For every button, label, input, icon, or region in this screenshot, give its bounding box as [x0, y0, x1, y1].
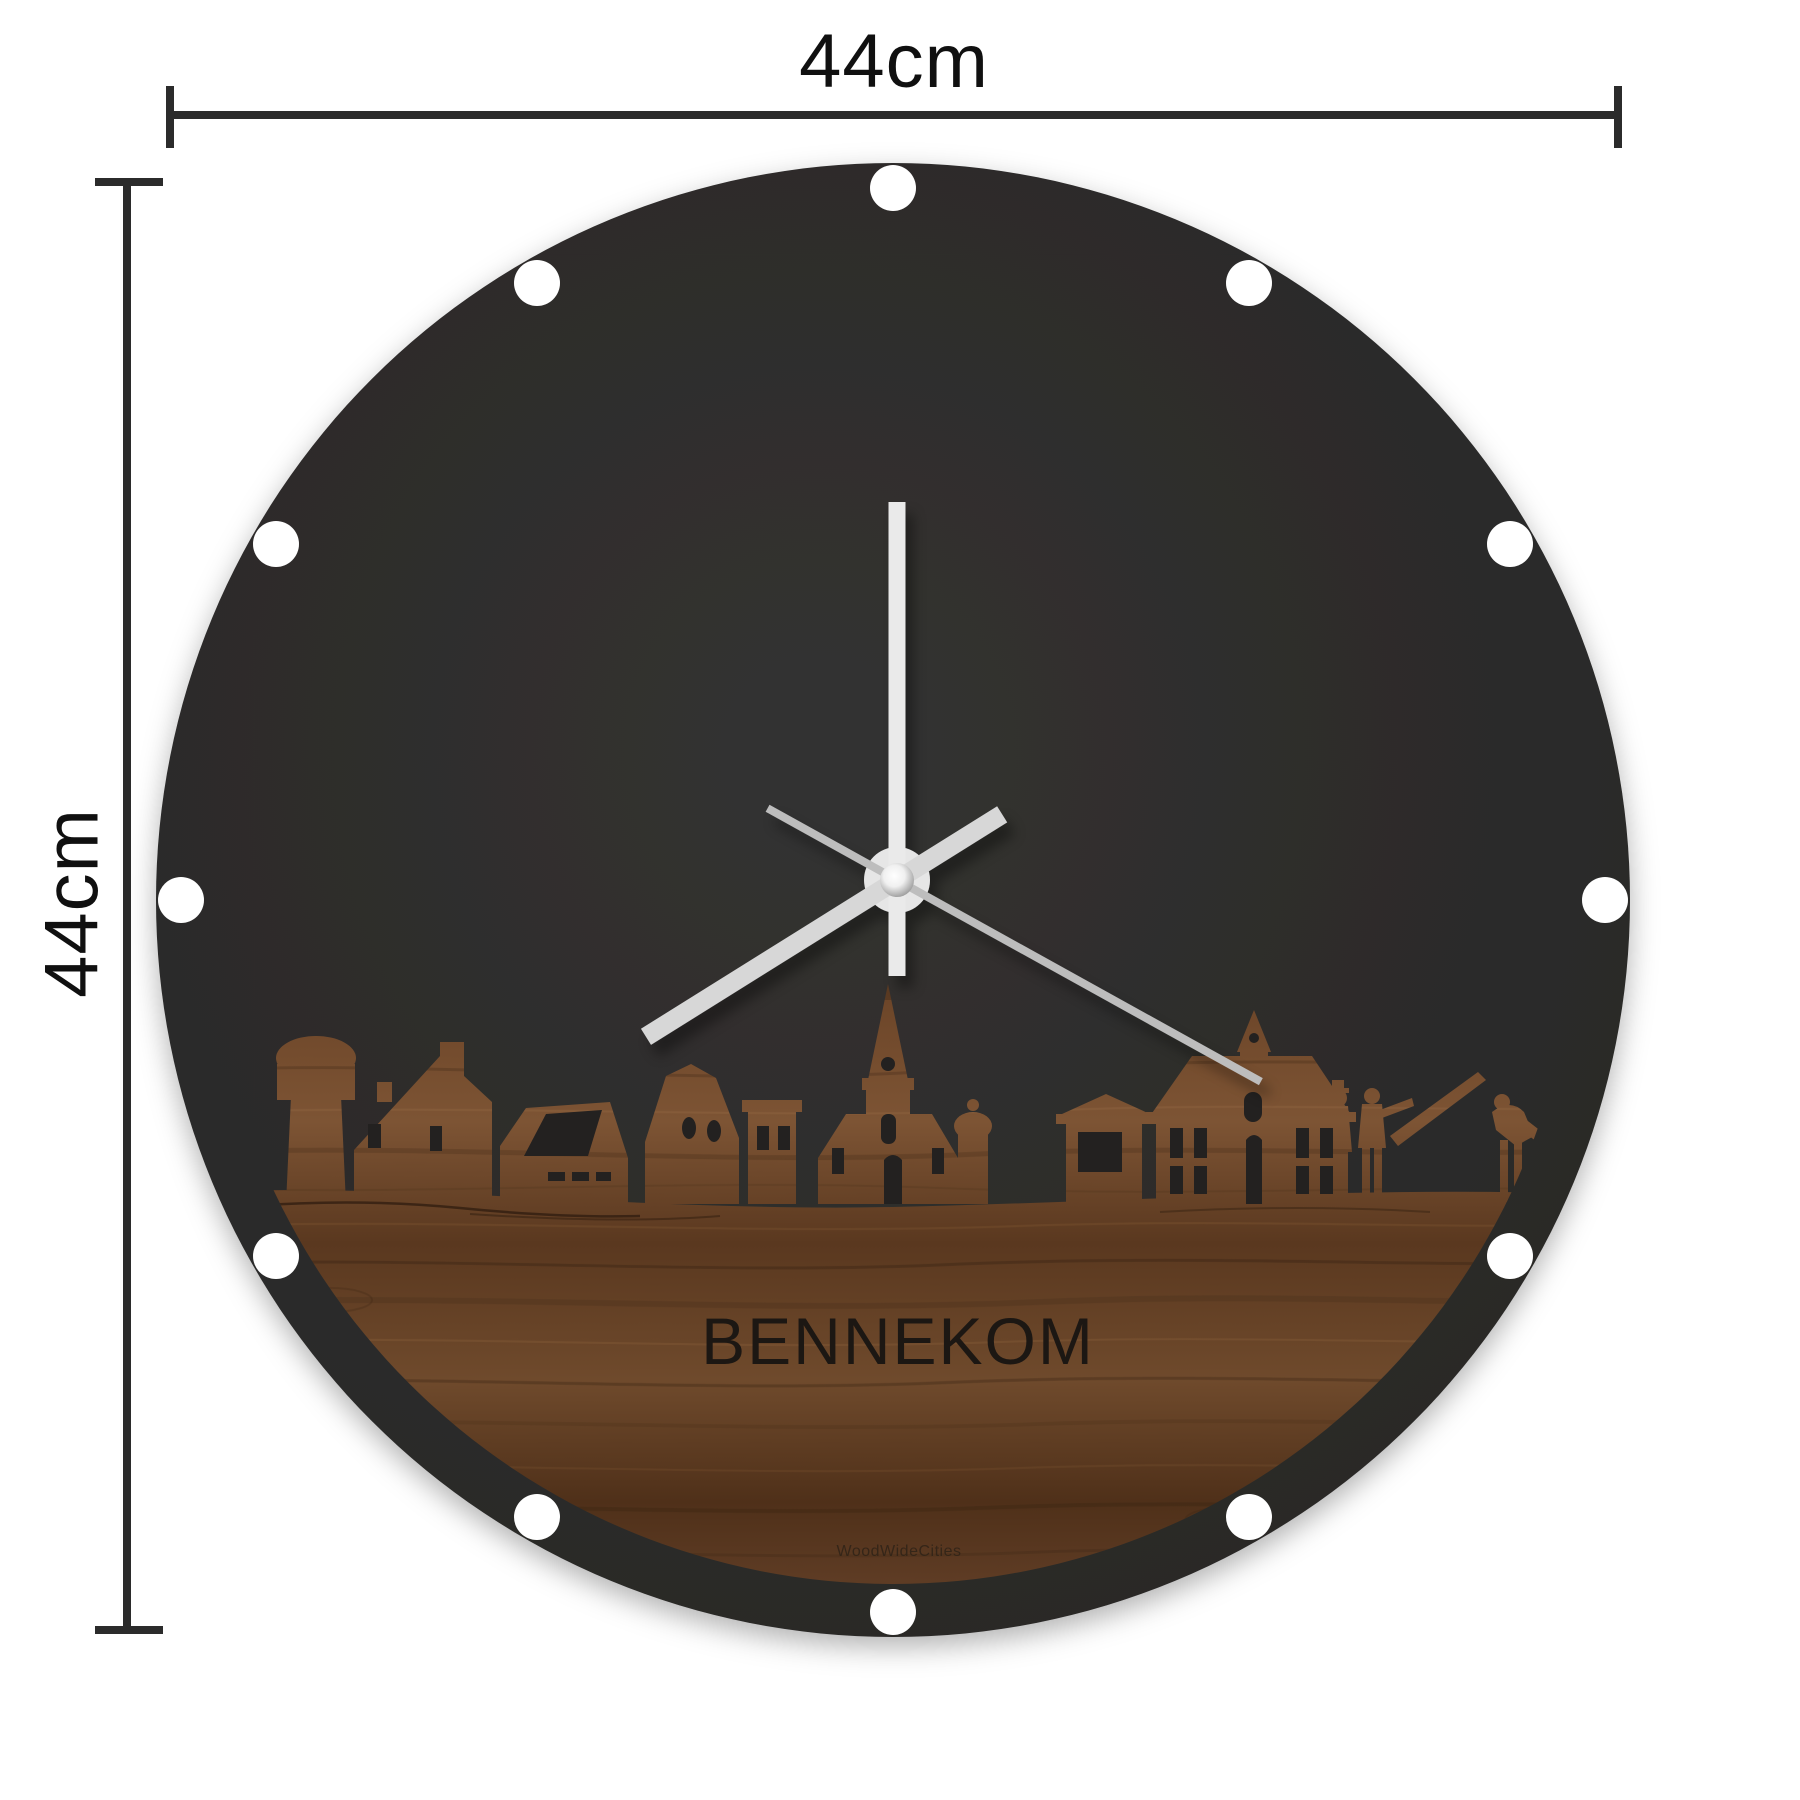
wall-clock-product-image: BENNEKOM WoodWideCities [0, 0, 1800, 1800]
center-cap [880, 863, 914, 897]
water-tower-dome [276, 1036, 356, 1080]
rim-notch [1226, 1494, 1272, 1540]
rim-notch [253, 1233, 299, 1279]
building-small-tower [742, 1100, 802, 1204]
rim-notch [514, 1494, 560, 1540]
rim-notch [870, 165, 916, 211]
rim-notch [1487, 521, 1533, 567]
brand-text: WoodWideCities [837, 1543, 962, 1560]
building-water-tower [286, 1096, 346, 1204]
rim-notch [158, 877, 204, 923]
rim-notch [1487, 1233, 1533, 1279]
building-domed-chimney [958, 1134, 988, 1204]
minute-hand [889, 502, 906, 976]
rim-notch [253, 521, 299, 567]
rim-notch [514, 260, 560, 306]
rim-notch [1582, 877, 1628, 923]
rim-notch [1226, 260, 1272, 306]
rim-notch [870, 1589, 916, 1635]
city-name-text: BENNEKOM [701, 1304, 1095, 1378]
building-pavilion [1056, 1114, 1156, 1124]
